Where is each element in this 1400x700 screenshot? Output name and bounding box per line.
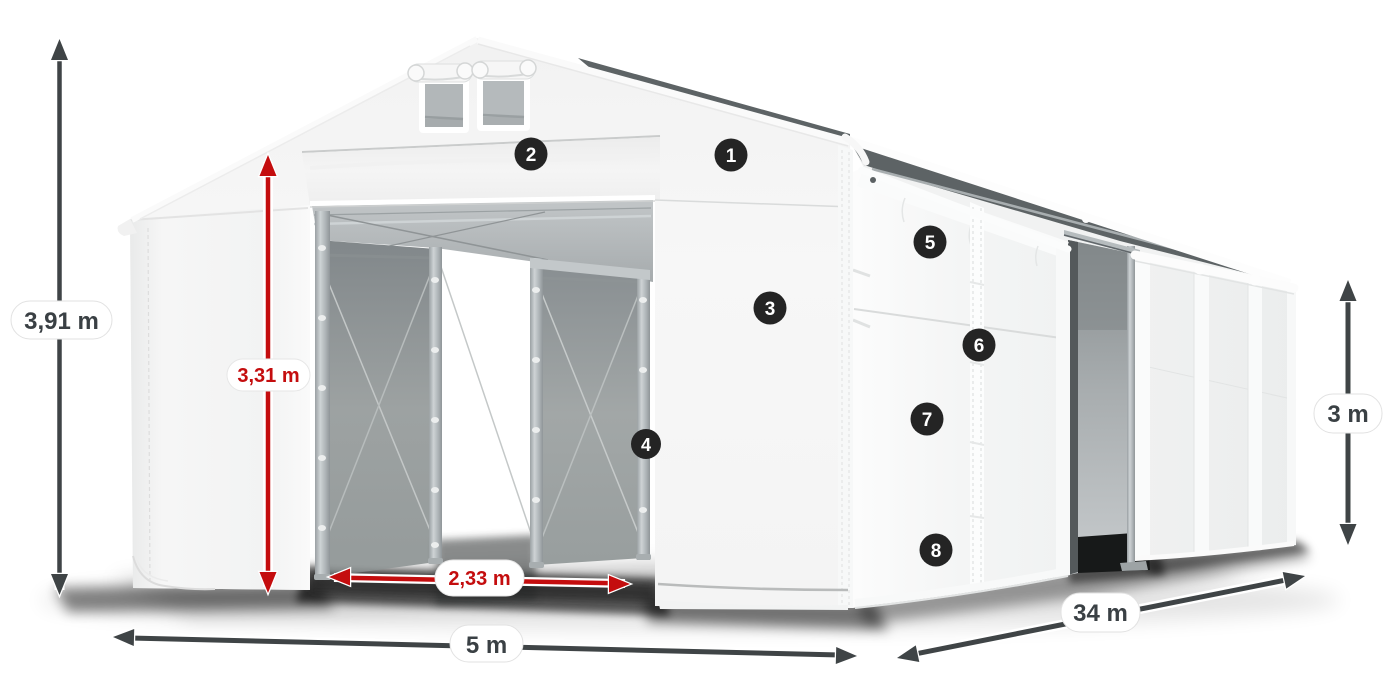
svg-text:2,33 m: 2,33 m bbox=[448, 568, 510, 590]
svg-text:3: 3 bbox=[765, 299, 776, 320]
svg-text:7: 7 bbox=[922, 410, 933, 431]
svg-text:8: 8 bbox=[931, 541, 942, 562]
svg-text:1: 1 bbox=[726, 146, 737, 167]
svg-text:5 m: 5 m bbox=[466, 632, 507, 659]
svg-text:3,31 m: 3,31 m bbox=[237, 365, 299, 387]
svg-text:34 m: 34 m bbox=[1073, 600, 1128, 627]
svg-text:2: 2 bbox=[526, 145, 537, 166]
svg-text:4: 4 bbox=[641, 435, 651, 455]
svg-text:3,91 m: 3,91 m bbox=[24, 308, 99, 335]
svg-text:6: 6 bbox=[974, 336, 985, 357]
svg-text:3 m: 3 m bbox=[1327, 401, 1368, 428]
svg-text:5: 5 bbox=[925, 233, 936, 254]
